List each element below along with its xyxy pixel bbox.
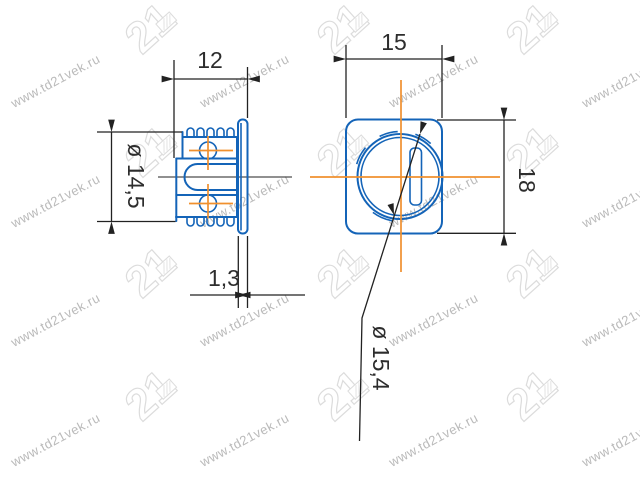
watermark-url: www.td21vek.ru — [578, 51, 640, 111]
watermark-url: www.td21vek.ru — [578, 171, 640, 231]
watermark-url: www.td21vek.ru — [385, 171, 480, 231]
watermark-url: www.td21vek.ru — [578, 410, 640, 470]
dim-front-height-label: 18 — [514, 167, 540, 193]
watermark-layer: www.td21vek.ru www.td21vek.ru www.td21ve… — [7, 0, 640, 470]
watermark-url: www.td21vek.ru — [385, 410, 480, 470]
watermark-url: www.td21vek.ru — [385, 290, 480, 350]
watermark-url: www.td21vek.ru — [196, 290, 291, 350]
watermark-url: www.td21vek.ru — [7, 51, 102, 111]
drawing-canvas: 21 www.td21vek.ru www.td21vek.ru www.td2… — [0, 0, 640, 480]
watermark-url: www.td21vek.ru — [7, 290, 102, 350]
dim-side-diameter-label: ø 14,5 — [123, 143, 149, 208]
watermark-url: www.td21vek.ru — [196, 410, 291, 470]
dim-side-depth-label: 12 — [197, 47, 223, 73]
drawing-page: 21 www.td21vek.ru www.td21vek.ru www.td2… — [0, 0, 640, 480]
watermark-url: www.td21vek.ru — [7, 410, 102, 470]
dim-front-width-label: 15 — [381, 29, 407, 55]
dim-side-flange-label: 1,3 — [208, 265, 240, 291]
watermark-url: www.td21vek.ru — [7, 171, 102, 231]
watermark-logo-tiles — [116, 0, 567, 430]
watermark-url: www.td21vek.ru — [196, 171, 291, 231]
watermark-url: www.td21vek.ru — [578, 290, 640, 350]
dim-front-cam-diameter-label: ø 15,4 — [368, 325, 394, 390]
watermark-url: www.td21vek.ru — [385, 51, 480, 111]
